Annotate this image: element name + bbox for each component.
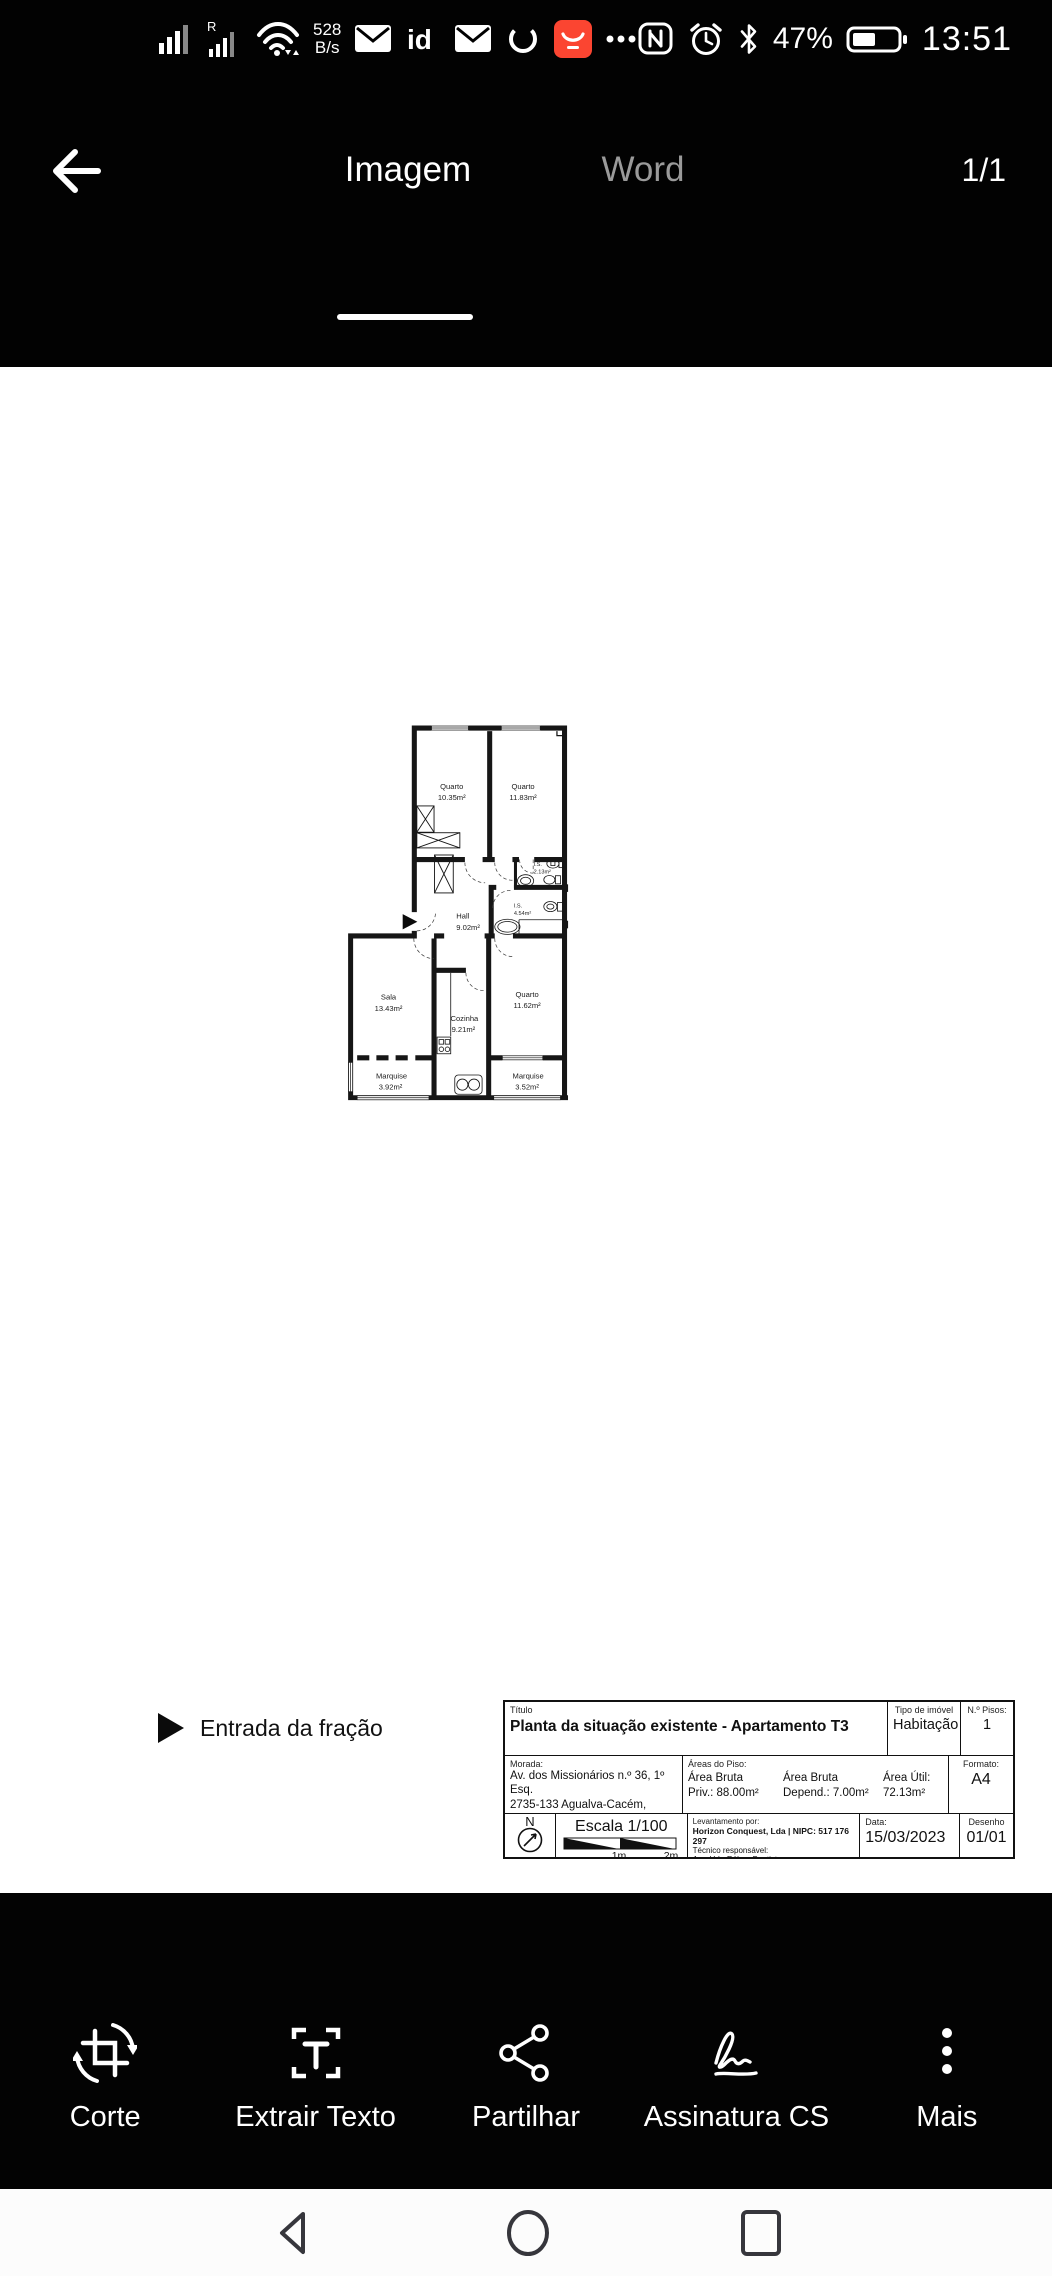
- crop-button[interactable]: Corte: [0, 2021, 210, 2189]
- svg-text:id: id: [407, 24, 432, 55]
- phone-screen: R 528 B/s: [0, 0, 1052, 2276]
- sync-icon: [505, 21, 541, 57]
- active-tab-underline: [337, 314, 473, 320]
- crop-rotate-icon: [73, 2021, 137, 2085]
- clock-time: 13:51: [922, 20, 1012, 59]
- title-label: Título: [510, 1705, 882, 1715]
- back-button[interactable]: [48, 142, 106, 200]
- area-gross-dependent: Área Bruta Depend.: 7.00m²: [783, 1771, 883, 1801]
- room-label: I.S.: [514, 904, 523, 910]
- type-label: Tipo de imóvel: [893, 1705, 955, 1715]
- status-bar: R 528 B/s: [158, 8, 1012, 70]
- room-label: Marquise: [513, 1072, 544, 1081]
- aliexpress-app-icon: [554, 20, 592, 58]
- more-notifications-icon: [605, 33, 637, 45]
- mail-icon: [354, 24, 392, 54]
- room-area: 3.52m²: [515, 1083, 539, 1092]
- room-area: 4.54m²: [514, 911, 531, 917]
- svg-text:N: N: [525, 1815, 534, 1829]
- address-line2: 2735-133 Agualva-Cacém, Sintra: [510, 1798, 677, 1813]
- scale-bar: 1m 2m: [561, 1836, 681, 1857]
- bluetooth-icon: [738, 22, 760, 56]
- nfc-icon: [638, 21, 674, 57]
- floor-plan: Quarto 10.35m² Quarto 11.83m² I.S. 2.13m…: [322, 725, 757, 1467]
- battery-icon: [846, 24, 909, 54]
- technician-name: Arq. Urb. Rúben Baptista: [693, 1855, 855, 1857]
- drawing-value: 01/01: [965, 1829, 1008, 1847]
- bathroom-fixtures: [495, 859, 564, 935]
- tab-imagem[interactable]: Imagem: [330, 150, 486, 190]
- tool-label: Extrair Texto: [235, 2101, 396, 2134]
- drawing-label: Desenho: [965, 1817, 1008, 1827]
- scale-label: Escala 1/100: [561, 1818, 682, 1836]
- room-label: Quarto: [440, 782, 463, 791]
- floors-label: N.º Pisos:: [966, 1705, 1008, 1715]
- entrance-legend-label: Entrada da fração: [200, 1715, 383, 1742]
- date-value: 15/03/2023: [865, 1829, 954, 1847]
- plan-title: Planta da situação existente - Apartamen…: [510, 1718, 882, 1736]
- id-app-icon: id: [405, 22, 441, 56]
- format-label: Formato:: [954, 1759, 1008, 1769]
- plan-wardrobes: [417, 806, 460, 893]
- share-icon: [494, 2021, 558, 2085]
- more-button[interactable]: Mais: [842, 2021, 1052, 2189]
- room-area: 13.43m²: [375, 1004, 403, 1013]
- room-label: Cozinha: [450, 1014, 479, 1023]
- tool-label: Corte: [70, 2101, 141, 2134]
- svg-text:R: R: [207, 19, 216, 34]
- format-value: A4: [954, 1771, 1008, 1789]
- address-line1: Av. dos Missionários n.º 36, 1º Esq.: [510, 1769, 677, 1798]
- date-label: Data:: [865, 1817, 954, 1827]
- top-chrome: R 528 B/s: [0, 0, 1052, 367]
- tool-label: Partilhar: [472, 2101, 580, 2134]
- north-compass-icon: N: [508, 1815, 552, 1855]
- room-label: Quarto: [511, 782, 534, 791]
- svg-text:2m: 2m: [664, 1850, 679, 1857]
- room-area: 9.02m²: [456, 923, 480, 932]
- room-area: 10.35m²: [438, 793, 466, 802]
- nav-home-button[interactable]: [504, 2209, 552, 2257]
- android-navbar: [0, 2189, 1052, 2276]
- network-speed: 528 B/s: [313, 21, 341, 58]
- room-area: 2.13m²: [534, 870, 551, 876]
- room-area: 9.21m²: [452, 1025, 476, 1034]
- nav-recents-button[interactable]: [737, 2209, 785, 2257]
- room-label: I.S.: [534, 862, 543, 868]
- address-label: Morada:: [510, 1759, 677, 1769]
- signal-strength-icon: [158, 21, 192, 57]
- floors-value: 1: [966, 1717, 1008, 1733]
- more-vertical-icon: [915, 2021, 979, 2085]
- room-label: Sala: [381, 993, 397, 1002]
- survey-label: Levantamento por:: [693, 1817, 855, 1826]
- action-toolbar: Corte Extrair Texto Partilhar Assinatu: [0, 1893, 1052, 2189]
- signature-icon: [704, 2021, 768, 2085]
- property-type: Habitação: [893, 1717, 955, 1733]
- room-label: Quarto: [516, 990, 539, 999]
- title-block: Título Planta da situação existente - Ap…: [503, 1700, 1015, 1859]
- area-gross-private: Área Bruta Priv.: 88.00m²: [688, 1771, 783, 1801]
- tool-label: Mais: [916, 2101, 977, 2134]
- technician-label: Técnico responsável:: [693, 1846, 855, 1855]
- area-useful: Área Útil: 72.13m²: [883, 1771, 943, 1801]
- room-label: Hall: [456, 912, 469, 921]
- entrance-arrow: [403, 914, 418, 929]
- room-area: 11.83m²: [509, 793, 537, 802]
- alarm-icon: [687, 20, 725, 58]
- tab-word[interactable]: Word: [585, 150, 701, 190]
- entrance-arrow-icon: [158, 1713, 186, 1743]
- room-label: Marquise: [376, 1072, 407, 1081]
- share-button[interactable]: Partilhar: [421, 2021, 631, 2189]
- nav-back-button[interactable]: [272, 2209, 320, 2257]
- survey-company: Horizon Conquest, Lda | NIPC: 517 176 29…: [693, 1826, 855, 1846]
- document-image: Quarto 10.35m² Quarto 11.83m² I.S. 2.13m…: [0, 367, 1052, 1893]
- page-indicator: 1/1: [962, 152, 1006, 189]
- mail-icon-2: [454, 24, 492, 54]
- extract-text-icon: [284, 2021, 348, 2085]
- signal-strength-sim2-icon: R: [205, 19, 243, 59]
- extract-text-button[interactable]: Extrair Texto: [210, 2021, 420, 2189]
- wifi-icon: [256, 19, 300, 59]
- svg-text:1m: 1m: [612, 1850, 627, 1857]
- battery-percent: 47%: [773, 22, 833, 56]
- signature-button[interactable]: Assinatura CS: [631, 2021, 841, 2189]
- areas-label: Áreas do Piso:: [688, 1759, 943, 1769]
- tool-label: Assinatura CS: [644, 2101, 829, 2134]
- room-area: 3.92m²: [379, 1083, 403, 1092]
- entrance-legend: Entrada da fração: [158, 1712, 383, 1744]
- room-area: 11.62m²: [513, 1001, 541, 1010]
